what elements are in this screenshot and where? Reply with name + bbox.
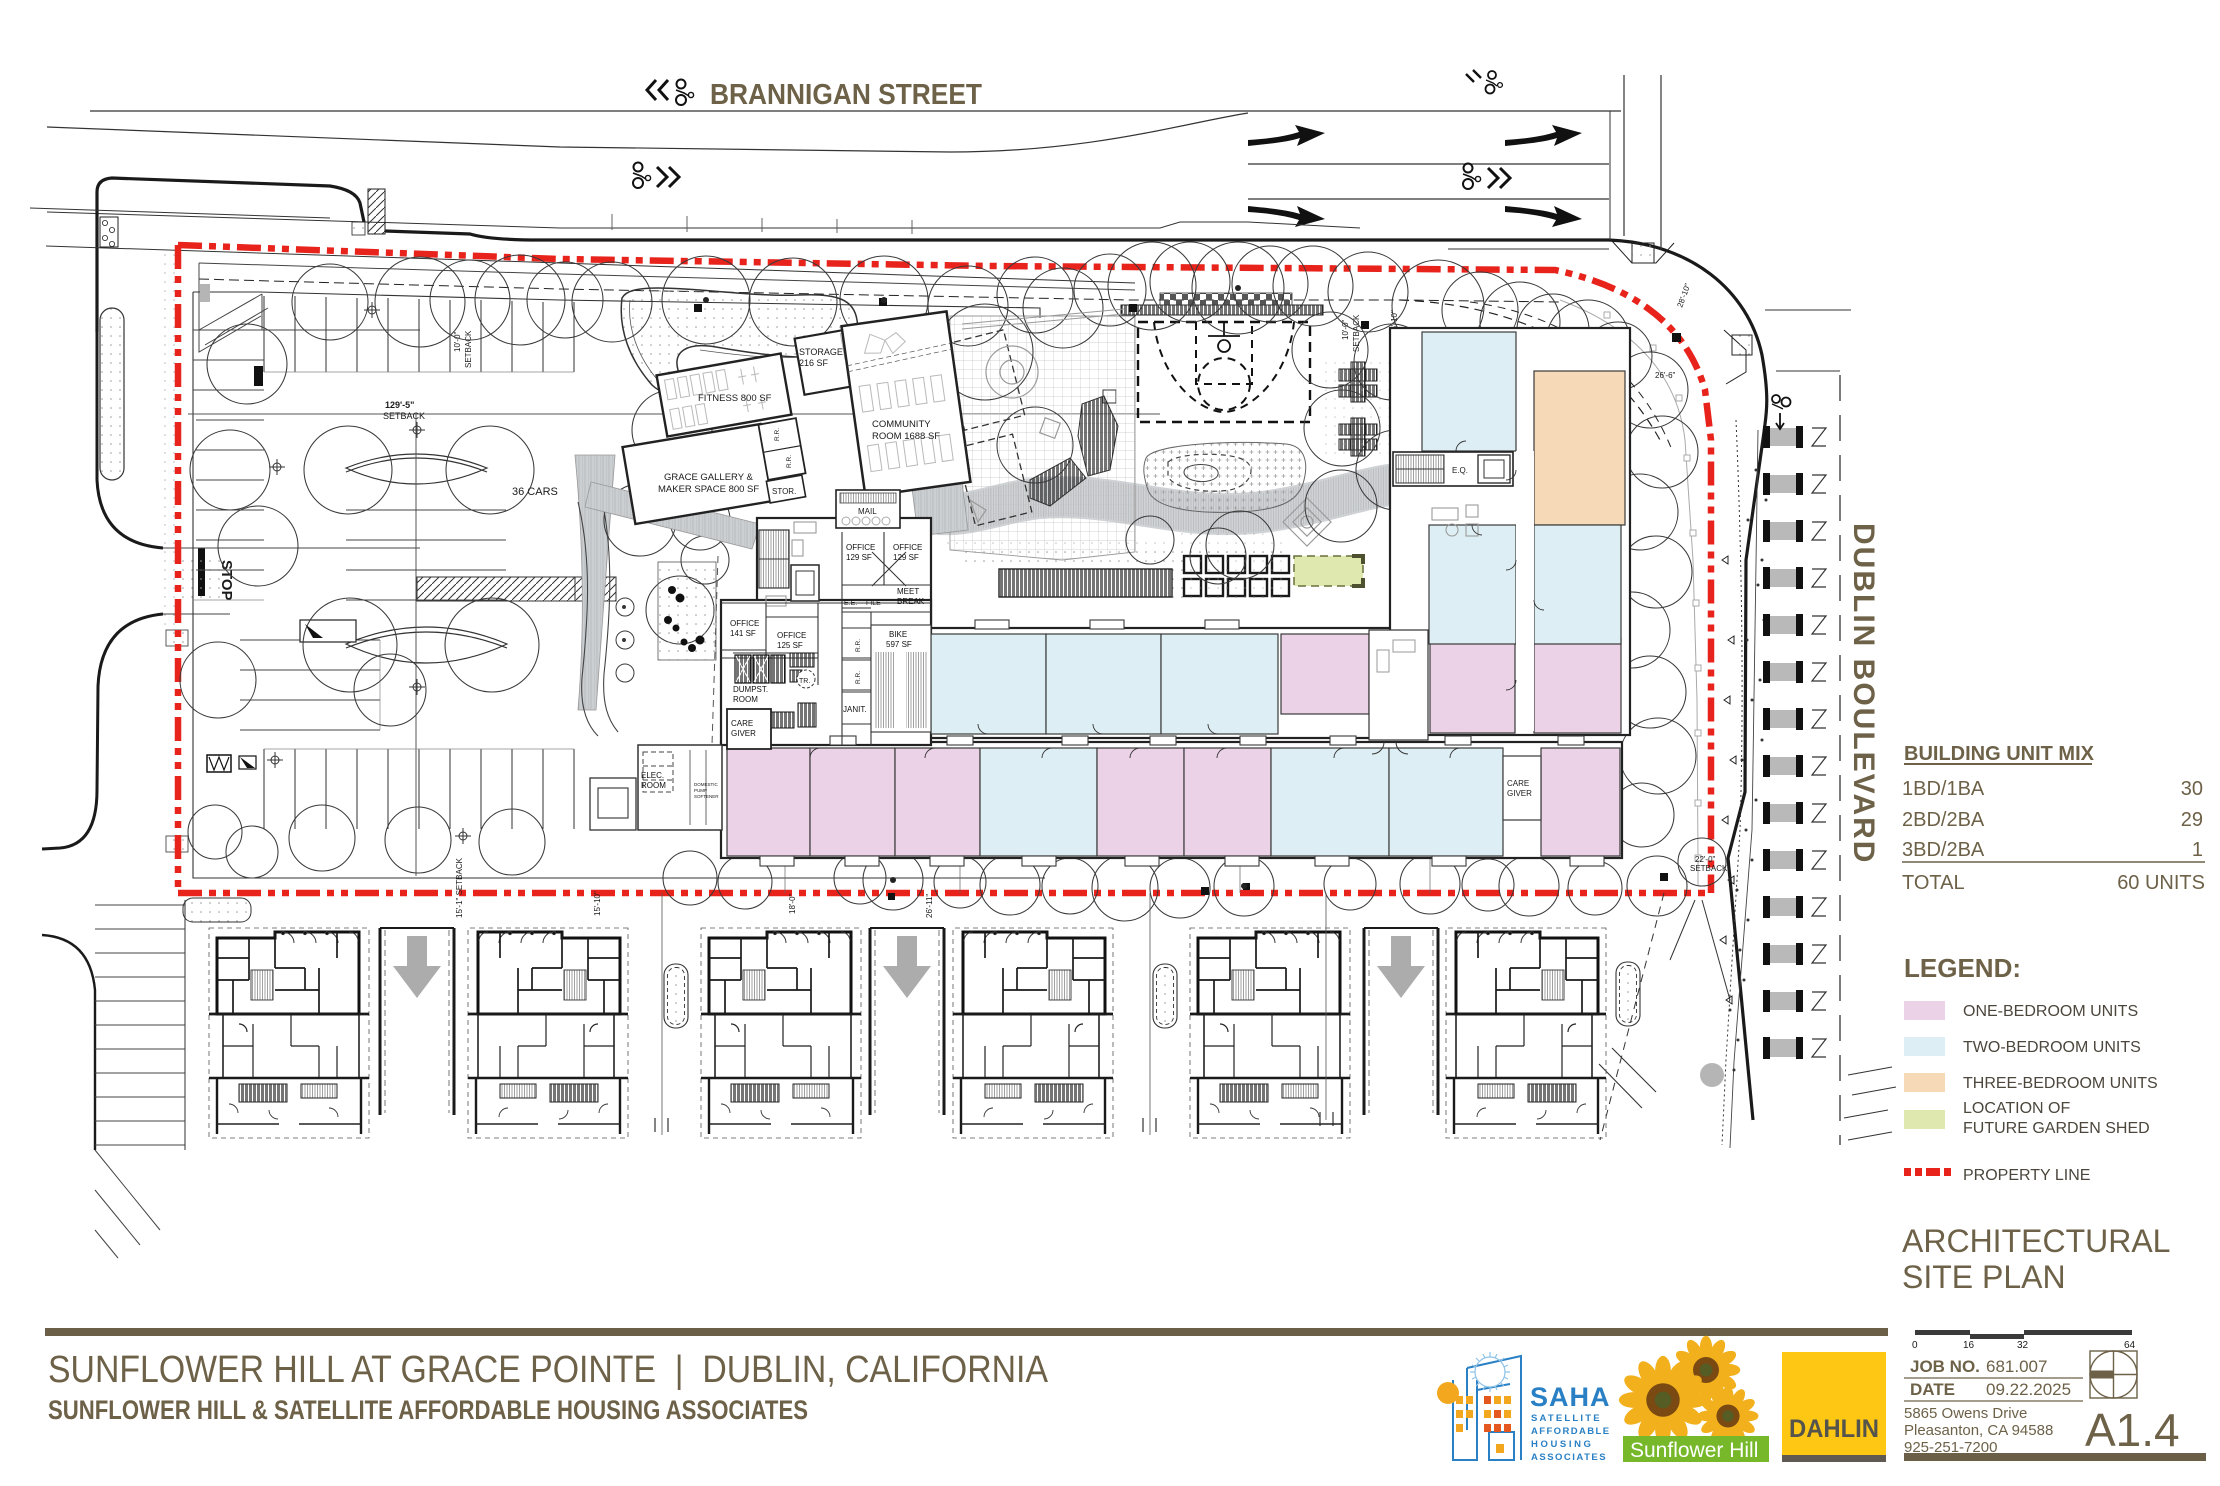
svg-text:SUNFLOWER HILL & SATELLITE AFF: SUNFLOWER HILL & SATELLITE AFFORDABLE HO…	[48, 1395, 808, 1425]
svg-text:DAHLIN: DAHLIN	[1789, 1415, 1879, 1443]
svg-text:29: 29	[2181, 809, 2203, 831]
svg-text:STORAGE: STORAGE	[799, 347, 843, 357]
svg-text:OFFICE: OFFICE	[777, 631, 806, 640]
svg-text:OFFICE: OFFICE	[730, 619, 759, 628]
svg-text:129'-5": 129'-5"	[385, 400, 414, 410]
svg-text:R.R.: R.R.	[855, 671, 862, 684]
svg-text:BUILDING UNIT MIX: BUILDING UNIT MIX	[1904, 743, 2095, 765]
svg-text:SETBACK: SETBACK	[383, 411, 425, 421]
svg-text:ROOM 1688 SF: ROOM 1688 SF	[872, 431, 940, 442]
svg-text:15'-1" SETBACK: 15'-1" SETBACK	[455, 857, 464, 918]
svg-text:ARCHITECTURAL: ARCHITECTURAL	[1902, 1223, 2170, 1259]
svg-text:E.E.: E.E.	[844, 600, 857, 607]
svg-text:AFFORDABLE: AFFORDABLE	[1531, 1426, 1610, 1437]
svg-text:ROOM: ROOM	[641, 781, 666, 790]
svg-text:SETBACK: SETBACK	[1690, 864, 1728, 873]
svg-text:18'-0": 18'-0"	[788, 893, 797, 914]
svg-text:15'-10": 15'-10"	[593, 891, 602, 916]
svg-text:CARE: CARE	[731, 719, 753, 728]
svg-text:09.22.2025: 09.22.2025	[1986, 1380, 2071, 1399]
svg-text:30: 30	[2181, 778, 2203, 800]
svg-text:125 SF: 125 SF	[777, 641, 803, 650]
svg-text:597 SF: 597 SF	[886, 640, 912, 649]
svg-text:TR.: TR.	[799, 678, 810, 685]
svg-text:BRANNIGAN STREET: BRANNIGAN STREET	[710, 79, 982, 111]
svg-text:CARE: CARE	[1507, 779, 1529, 788]
svg-text:216 SF: 216 SF	[799, 358, 829, 368]
svg-text:BIKE: BIKE	[889, 630, 907, 639]
svg-text:DUMPST.: DUMPST.	[733, 685, 768, 694]
svg-text:SATELLITE: SATELLITE	[1531, 1413, 1602, 1424]
svg-text:DOMESTIC: DOMESTIC	[694, 782, 719, 787]
svg-text:129 SF: 129 SF	[846, 553, 872, 562]
svg-text:36 CARS: 36 CARS	[512, 486, 558, 498]
svg-text:JOB NO.: JOB NO.	[1910, 1357, 1980, 1376]
svg-text:R.R.: R.R.	[774, 428, 781, 441]
svg-text:OFFICE: OFFICE	[893, 543, 922, 552]
svg-text:R.R.: R.R.	[786, 455, 793, 468]
svg-text:COMMUNITY: COMMUNITY	[872, 419, 931, 430]
svg-text:2BD/2BA: 2BD/2BA	[1902, 809, 1985, 831]
svg-text:THREE-BEDROOM UNITS: THREE-BEDROOM UNITS	[1963, 1075, 2158, 1092]
svg-text:SOFTENER: SOFTENER	[694, 794, 719, 799]
svg-text:16: 16	[1963, 1340, 1975, 1351]
svg-text:FILE: FILE	[866, 600, 881, 607]
svg-text:SUNFLOWER HILL AT GRACE POINTE: SUNFLOWER HILL AT GRACE POINTE | DUBLIN,…	[48, 1349, 1049, 1391]
svg-text:FUTURE GARDEN SHED: FUTURE GARDEN SHED	[1963, 1120, 2150, 1137]
svg-text:141 SF: 141 SF	[730, 629, 756, 638]
svg-text:26'-11": 26'-11"	[925, 894, 934, 918]
svg-text:MEET: MEET	[897, 587, 919, 596]
svg-text:HOUSING: HOUSING	[1531, 1439, 1594, 1450]
svg-text:10'-0": 10'-0"	[453, 331, 462, 352]
svg-text:60 UNITS: 60 UNITS	[2117, 872, 2205, 894]
svg-text:PROPERTY LINE: PROPERTY LINE	[1963, 1167, 2090, 1184]
svg-text:TOTAL: TOTAL	[1902, 872, 1965, 894]
svg-text:R.R.: R.R.	[855, 639, 862, 652]
svg-text:ONE-BEDROOM UNITS: ONE-BEDROOM UNITS	[1963, 1003, 2138, 1020]
svg-text:GIVER: GIVER	[731, 729, 756, 738]
svg-text:SAHA: SAHA	[1530, 1382, 1611, 1412]
svg-text:Pleasanton, CA 94588: Pleasanton, CA 94588	[1904, 1422, 2053, 1439]
svg-text:DUBLIN BOULEVARD: DUBLIN BOULEVARD	[1847, 523, 1880, 864]
svg-text:MAKER SPACE 800 SF: MAKER SPACE 800 SF	[658, 484, 759, 495]
svg-text:A1.4: A1.4	[2085, 1404, 2180, 1456]
svg-text:JANIT.: JANIT.	[843, 705, 867, 714]
svg-text:DATE: DATE	[1910, 1380, 1955, 1399]
svg-text:1BD/1BA: 1BD/1BA	[1902, 778, 1985, 800]
svg-text:E.Q.: E.Q.	[1452, 466, 1468, 475]
svg-text:MAIL: MAIL	[858, 507, 877, 516]
svg-text:3BD/2BA: 3BD/2BA	[1902, 839, 1985, 861]
svg-text:GIVER: GIVER	[1507, 789, 1532, 798]
svg-text:32: 32	[2017, 1340, 2029, 1351]
svg-text:LEGEND:: LEGEND:	[1904, 953, 2021, 983]
svg-text:26'-6": 26'-6"	[1655, 371, 1676, 380]
svg-text:TWO-BEDROOM UNITS: TWO-BEDROOM UNITS	[1963, 1039, 2141, 1056]
svg-text:0: 0	[1912, 1340, 1918, 1351]
svg-text:STOR.: STOR.	[772, 487, 796, 496]
svg-text:OFFICE: OFFICE	[846, 543, 875, 552]
svg-text:64: 64	[2124, 1340, 2136, 1351]
svg-text:SETBACK: SETBACK	[464, 330, 473, 368]
svg-text:ELEC.: ELEC.	[641, 771, 664, 780]
svg-text:ASSOCIATES: ASSOCIATES	[1531, 1452, 1607, 1463]
svg-text:PUMP: PUMP	[694, 788, 707, 793]
svg-text:Sunflower Hill: Sunflower Hill	[1630, 1439, 1758, 1462]
svg-text:ROOM: ROOM	[733, 695, 758, 704]
svg-text:FITNESS 800 SF: FITNESS 800 SF	[698, 393, 772, 404]
svg-text:681.007: 681.007	[1986, 1357, 2047, 1376]
svg-text:LOCATION OF: LOCATION OF	[1963, 1100, 2070, 1117]
svg-text:SITE PLAN: SITE PLAN	[1902, 1259, 2066, 1295]
svg-text:1: 1	[2192, 839, 2203, 861]
svg-text:GRACE GALLERY &: GRACE GALLERY &	[664, 472, 754, 483]
svg-text:BREAK: BREAK	[897, 597, 925, 606]
svg-text:5865 Owens Drive: 5865 Owens Drive	[1904, 1405, 2027, 1422]
svg-text:22'-0": 22'-0"	[1695, 855, 1716, 864]
